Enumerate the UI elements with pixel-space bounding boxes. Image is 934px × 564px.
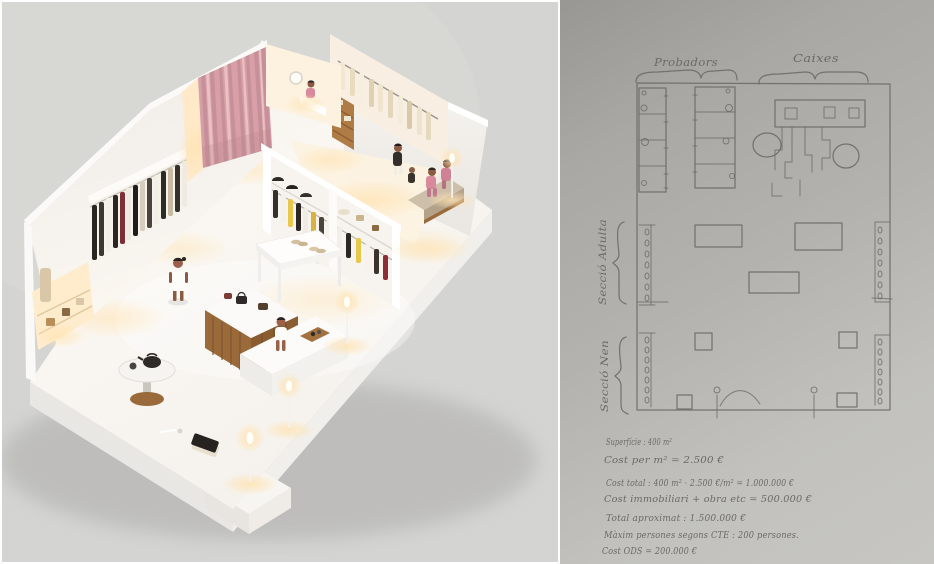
checkout-counters-caixes bbox=[753, 100, 865, 196]
brace-probadors bbox=[636, 70, 737, 82]
note-line-1: Superfície : 400 m² bbox=[606, 437, 672, 448]
note-line-2: Cost per m² = 2.500 € bbox=[604, 455, 724, 466]
brace-seccio-adulta bbox=[613, 222, 626, 304]
notes-block: Superfície : 400 m² Cost per m² = 2.500 … bbox=[602, 437, 812, 557]
section-dividers bbox=[637, 298, 892, 302]
display-tables-adult bbox=[695, 223, 842, 293]
round-mirror bbox=[290, 72, 302, 84]
queue-paths bbox=[772, 127, 830, 196]
photo-panel bbox=[0, 0, 558, 564]
label-probadors: Probadors bbox=[653, 56, 718, 69]
fitting-rooms-probadors bbox=[639, 87, 735, 192]
hanging-coat bbox=[40, 268, 51, 302]
brace-seccio-nen bbox=[615, 337, 628, 414]
label-caixes: Caixes bbox=[793, 52, 839, 65]
kids-section-elements bbox=[639, 332, 890, 409]
note-line-6: Màxim persones segons CTE : 200 persones… bbox=[603, 530, 799, 541]
label-seccio-adulta: Secció Adulta bbox=[598, 219, 609, 305]
composite-image: Probadors Caixes bbox=[0, 0, 934, 564]
note-line-5: Total aproximat : 1.500.000 € bbox=[606, 513, 746, 524]
store-model-illustration bbox=[0, 0, 558, 564]
brace-caixes bbox=[759, 72, 868, 84]
note-line-4: Cost immobiliari + obra etc = 500.000 € bbox=[604, 494, 812, 505]
sketch-panel: Probadors Caixes bbox=[558, 0, 934, 564]
note-line-3: Cost total : 400 m² · 2.500 €/m² = 1.000… bbox=[606, 478, 794, 489]
plan-outline bbox=[637, 83, 890, 410]
note-line-7: Cost ODS = 200.000 € bbox=[602, 546, 697, 557]
entrance-doors bbox=[714, 387, 817, 418]
floor-plan-sketch: Probadors Caixes bbox=[560, 0, 934, 564]
label-seccio-nen: Secció Nen bbox=[600, 340, 611, 412]
